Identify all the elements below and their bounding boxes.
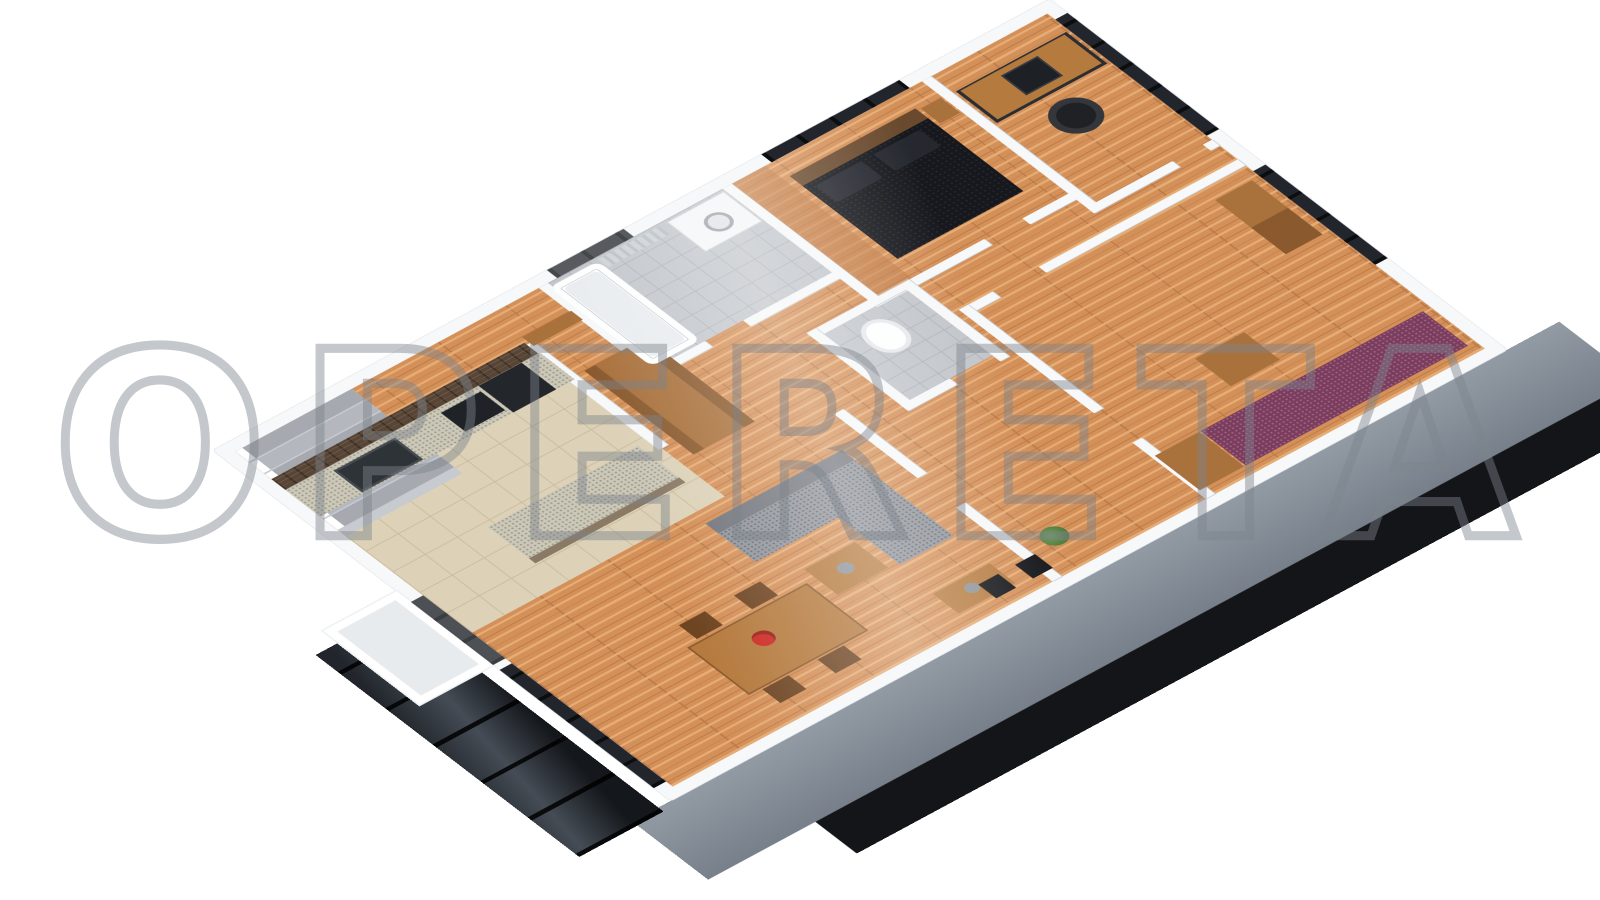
floorplan-scene bbox=[213, 0, 1507, 801]
floorplan-stage: OPERETA bbox=[0, 0, 1600, 900]
